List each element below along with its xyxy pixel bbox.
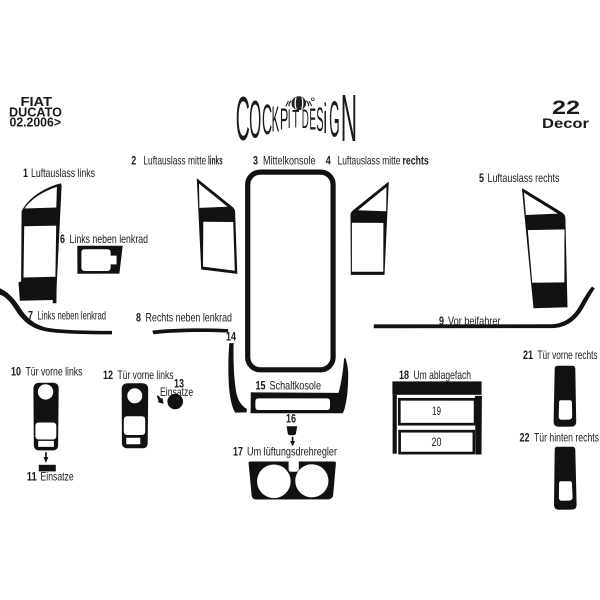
svg-text:Rechts neben lenkrad: Rechts neben lenkrad [146,311,233,325]
svg-text:15: 15 [256,378,266,392]
svg-text:Tür vorne links: Tür vorne links [26,364,83,378]
svg-text:22: 22 [520,430,530,444]
svg-text:11: 11 [27,470,37,484]
svg-text:D: D [302,106,309,135]
svg-text:Mittelkonsole: Mittelkonsole [263,154,316,168]
svg-text:2: 2 [131,154,136,168]
svg-text:Um lüftungsdrehregler: Um lüftungsdrehregler [247,444,337,458]
svg-text:21: 21 [523,348,533,362]
svg-text:5: 5 [479,171,484,185]
svg-text:14: 14 [226,329,236,343]
svg-text:18: 18 [399,368,409,382]
svg-text:12: 12 [103,368,113,382]
svg-text:Links neben lenkrad: Links neben lenkrad [38,309,107,323]
svg-text:rechts: rechts [403,154,430,168]
svg-text:Um ablagefach: Um ablagefach [414,368,472,382]
svg-text:17: 17 [233,444,243,458]
svg-text:16: 16 [286,411,296,425]
svg-text:Luftauslass mitte: Luftauslass mitte [143,154,206,168]
svg-text:Tür vorne links: Tür vorne links [118,368,174,382]
svg-text:I: I [288,106,291,135]
svg-text:Schaltkosole: Schaltkosole [270,378,322,392]
svg-text:19: 19 [432,404,441,418]
svg-text:Luftauslass links: Luftauslass links [31,166,95,180]
svg-text:Luftauslass rechts: Luftauslass rechts [488,171,560,185]
svg-text:8: 8 [136,311,141,325]
svg-text:Tür vorne rechts: Tür vorne rechts [538,348,598,362]
svg-text:1: 1 [23,166,28,180]
svg-text:Decor: Decor [542,116,590,132]
svg-text:S: S [316,101,323,139]
svg-text:Luftauslass mitte: Luftauslass mitte [338,154,401,168]
svg-text:Tür hinten rechts: Tür hinten rechts [534,430,599,444]
svg-text:6: 6 [60,232,65,246]
svg-text:i: i [323,95,327,142]
svg-text:02.2006>: 02.2006> [10,115,62,129]
svg-text:links: links [208,154,223,168]
svg-text:C: C [236,83,250,153]
svg-text:10: 10 [11,364,21,378]
svg-text:N: N [341,81,357,156]
svg-text:Einsatze: Einsatze [41,470,74,484]
svg-text:4: 4 [326,154,331,168]
svg-text:Links neben lenkrad: Links neben lenkrad [70,232,149,246]
svg-text:20: 20 [432,435,442,449]
svg-text:G: G [329,90,339,147]
svg-text:3: 3 [253,154,258,168]
svg-text:O: O [249,91,261,149]
svg-text:K: K [272,99,280,139]
svg-text:P: P [280,102,288,136]
svg-text:E: E [309,102,316,136]
svg-text:C: C [262,95,272,143]
